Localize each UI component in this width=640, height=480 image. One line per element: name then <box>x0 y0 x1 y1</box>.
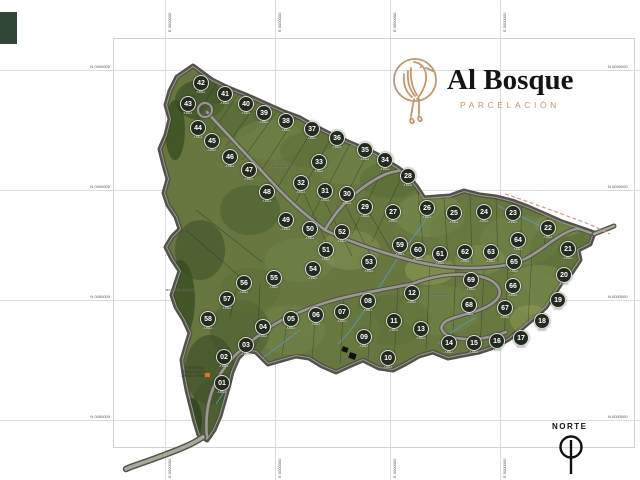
logo: Al Bosque PARCELACIÓN <box>390 52 600 132</box>
lot-area-label: AREA <box>450 221 459 224</box>
lot-marker-58: 58AREA <box>200 311 216 327</box>
lot-number: 41 <box>221 91 229 98</box>
lot-area-label: AREA <box>287 327 296 330</box>
lot-number: 44 <box>194 125 202 132</box>
lot-number: 21 <box>564 246 572 253</box>
lot-marker-45: 45AREA <box>204 133 220 149</box>
lot-number: 46 <box>226 154 234 161</box>
lot-marker-42: 42AREA <box>193 75 209 91</box>
lot-number: 59 <box>396 242 404 249</box>
lot-number: 28 <box>404 173 412 180</box>
lot-area-label: AREA <box>263 200 272 203</box>
lot-area-label: AREA <box>197 91 206 94</box>
lot-area-label: AREA <box>364 309 373 312</box>
lot-number: 54 <box>309 266 317 273</box>
lot-number: 52 <box>338 229 346 236</box>
bird-icon <box>390 54 444 132</box>
lot-marker-18: 18AREA <box>534 313 550 329</box>
lot-area-label: AREA <box>564 257 573 260</box>
lot-number: 23 <box>509 210 517 217</box>
lot-number: 36 <box>333 135 341 142</box>
lot-number: 32 <box>297 180 305 187</box>
lot-marker-59: 59AREA <box>392 237 408 253</box>
lot-number: 22 <box>544 225 552 232</box>
lot-number: 31 <box>321 188 329 195</box>
lot-marker-15: 15AREA <box>466 335 482 351</box>
lot-area-label: AREA <box>390 329 399 332</box>
lot-number: 19 <box>554 297 562 304</box>
lot-area-label: AREA <box>487 260 496 263</box>
lot-number: 43 <box>184 101 192 108</box>
lot-number: 63 <box>487 249 495 256</box>
site-plan-sheet: E 0000000E 0000000E 0000000E 0000000E 00… <box>0 0 640 480</box>
lot-area-label: AREA <box>465 313 474 316</box>
lot-marker-55: 55AREA <box>266 270 282 286</box>
lot-marker-53: 53AREA <box>361 254 377 270</box>
lot-marker-33: 33AREA <box>311 154 327 170</box>
lot-number: 65 <box>510 259 518 266</box>
lot-marker-65: 65AREA <box>506 254 522 270</box>
lot-area-label: AREA <box>308 137 317 140</box>
lot-number: 07 <box>338 309 346 316</box>
lot-marker-52: 52AREA <box>334 224 350 240</box>
lot-marker-17: 17AREA <box>513 330 529 346</box>
lot-area-label: AREA <box>384 366 393 369</box>
lot-marker-22: 22AREA <box>540 220 556 236</box>
lot-number: 37 <box>308 126 316 133</box>
lot-marker-38: 38AREA <box>278 113 294 129</box>
lot-number: 30 <box>343 191 351 198</box>
lot-area-label: AREA <box>501 316 510 319</box>
lot-number: 50 <box>306 226 314 233</box>
lot-number: 40 <box>242 101 250 108</box>
lot-marker-44: 44AREA <box>190 120 206 136</box>
lot-area-label: AREA <box>315 170 324 173</box>
lot-number: 49 <box>282 217 290 224</box>
lot-marker-05: 05AREA <box>283 311 299 327</box>
lot-number: 26 <box>423 205 431 212</box>
lot-area-label: AREA <box>436 262 445 265</box>
lot-marker-12: 12AREA <box>404 285 420 301</box>
lot-marker-48: 48AREA <box>259 184 275 200</box>
lot-area-label: AREA <box>480 220 489 223</box>
lot-area-label: AREA <box>321 199 330 202</box>
lot-number: 12 <box>408 290 416 297</box>
lot-marker-16: 16AREA <box>489 333 505 349</box>
lot-marker-07: 07AREA <box>334 304 350 320</box>
lot-area-label: AREA <box>259 335 268 338</box>
lot-area-label: AREA <box>223 307 232 310</box>
lot-number: 39 <box>260 110 268 117</box>
lot-number: 56 <box>240 280 248 287</box>
lot-area-label: AREA <box>282 129 291 132</box>
lot-area-label: AREA <box>343 202 352 205</box>
lot-marker-61: 61AREA <box>432 246 448 262</box>
lot-area-label: AREA <box>333 146 342 149</box>
lot-number: 69 <box>467 277 475 284</box>
lot-marker-25: 25AREA <box>446 205 462 221</box>
lot-marker-64: 64AREA <box>510 232 526 248</box>
lot-marker-14: 14AREA <box>441 335 457 351</box>
lot-number: 64 <box>514 237 522 244</box>
lot-number: 33 <box>315 159 323 166</box>
lot-number: 16 <box>493 338 501 345</box>
lot-area-label: AREA <box>270 286 279 289</box>
lot-area-label: AREA <box>297 191 306 194</box>
lot-area-label: AREA <box>467 288 476 291</box>
lot-area-label: AREA <box>365 270 374 273</box>
lot-number: 17 <box>517 335 525 342</box>
lot-number: 47 <box>245 167 253 174</box>
lot-marker-13: 13AREA <box>413 321 429 337</box>
corner-accent-bar <box>0 12 17 44</box>
lot-area-label: AREA <box>544 236 553 239</box>
lot-number: 68 <box>465 302 473 309</box>
lot-number: 51 <box>322 247 330 254</box>
lot-number: 04 <box>259 324 267 331</box>
lot-area-label: AREA <box>194 136 203 139</box>
lot-area-label: AREA <box>282 228 291 231</box>
lot-area-label: AREA <box>493 349 502 352</box>
lot-number: 15 <box>470 340 478 347</box>
lot-area-label: AREA <box>322 258 331 261</box>
lot-marker-08: 08AREA <box>360 293 376 309</box>
lot-marker-37: 37AREA <box>304 121 320 137</box>
lot-marker-21: 21AREA <box>560 241 576 257</box>
lot-marker-20: 20AREA <box>556 267 572 283</box>
lot-number: 45 <box>208 138 216 145</box>
lot-marker-31: 31AREA <box>317 183 333 199</box>
lot-area-label: AREA <box>554 308 563 311</box>
lot-area-label: AREA <box>361 158 370 161</box>
lot-area-label: AREA <box>517 346 526 349</box>
lot-marker-68: 68AREA <box>461 297 477 313</box>
lot-marker-28: 28AREA <box>400 168 416 184</box>
lot-number: 57 <box>223 296 231 303</box>
lot-area-label: AREA <box>208 149 217 152</box>
lot-number: 03 <box>242 342 250 349</box>
lot-marker-51: 51AREA <box>318 242 334 258</box>
lot-area-label: AREA <box>260 121 269 124</box>
lot-marker-04: 04AREA <box>255 319 271 335</box>
lot-number: 27 <box>389 209 397 216</box>
lot-area-label: AREA <box>461 260 470 263</box>
lot-area-label: AREA <box>538 329 547 332</box>
lot-area-label: AREA <box>389 220 398 223</box>
lot-area-label: AREA <box>417 337 426 340</box>
lot-number: 29 <box>361 204 369 211</box>
lot-area-label: AREA <box>306 237 315 240</box>
lot-area-label: AREA <box>381 168 390 171</box>
lot-area-label: AREA <box>423 216 432 219</box>
lot-marker-30: 30AREA <box>339 186 355 202</box>
lot-area-label: AREA <box>514 248 523 251</box>
lot-marker-09: 09AREA <box>356 329 372 345</box>
lot-number: 06 <box>312 312 320 319</box>
lot-number: 38 <box>282 118 290 125</box>
lot-area-label: AREA <box>242 112 251 115</box>
lot-number: 08 <box>364 298 372 305</box>
lot-number: 53 <box>365 259 373 266</box>
lot-area-label: AREA <box>184 112 193 115</box>
lot-marker-43: 43AREA <box>180 96 196 112</box>
lot-number: 61 <box>436 251 444 258</box>
lot-area-label: AREA <box>242 353 251 356</box>
lot-marker-23: 23AREA <box>505 205 521 221</box>
lot-area-label: AREA <box>404 184 413 187</box>
lot-area-label: AREA <box>245 178 254 181</box>
lot-area-label: AREA <box>204 327 213 330</box>
lot-marker-46: 46AREA <box>222 149 238 165</box>
lot-number: 48 <box>263 189 271 196</box>
lot-marker-01: 01AREA <box>214 375 230 391</box>
lot-number: 09 <box>360 334 368 341</box>
north-arrow-icon <box>548 432 598 476</box>
lot-number: 25 <box>450 210 458 217</box>
lot-marker-29: 29AREA <box>357 199 373 215</box>
logo-title: Al Bosque <box>447 64 574 97</box>
lot-number: 10 <box>384 355 392 362</box>
lot-number: 42 <box>197 80 205 87</box>
lot-number: 67 <box>501 305 509 312</box>
lot-area-label: AREA <box>218 391 227 394</box>
lot-area-label: AREA <box>338 320 347 323</box>
lot-marker-47: 47AREA <box>241 162 257 178</box>
lot-marker-56: 56AREA <box>236 275 252 291</box>
lot-marker-06: 06AREA <box>308 307 324 323</box>
lot-area-label: AREA <box>396 253 405 256</box>
lot-number: 05 <box>287 316 295 323</box>
lot-number: 34 <box>381 157 389 164</box>
lot-area-label: AREA <box>509 294 518 297</box>
lot-marker-60: 60AREA <box>410 242 426 258</box>
lot-marker-57: 57AREA <box>219 291 235 307</box>
lot-area-label: AREA <box>445 351 454 354</box>
lot-area-label: AREA <box>360 345 369 348</box>
north-arrow: NORTE <box>548 422 598 474</box>
lot-marker-02: 02AREA <box>216 349 232 365</box>
lot-area-label: AREA <box>470 351 479 354</box>
lot-area-label: AREA <box>312 323 321 326</box>
lot-area-label: AREA <box>510 270 519 273</box>
lot-marker-32: 32AREA <box>293 175 309 191</box>
lot-number: 02 <box>220 354 228 361</box>
lot-marker-10: 10AREA <box>380 350 396 366</box>
lot-number: 35 <box>361 147 369 154</box>
lot-marker-11: 11AREA <box>386 313 402 329</box>
lot-marker-67: 67AREA <box>497 300 513 316</box>
lot-marker-34: 34AREA <box>377 152 393 168</box>
lot-number: 13 <box>417 326 425 333</box>
lot-area-label: AREA <box>408 301 417 304</box>
lot-marker-63: 63AREA <box>483 244 499 260</box>
lot-marker-35: 35AREA <box>357 142 373 158</box>
lot-number: 66 <box>509 283 517 290</box>
lot-area-label: AREA <box>560 283 569 286</box>
lot-area-label: AREA <box>509 221 518 224</box>
lot-marker-40: 40AREA <box>238 96 254 112</box>
lot-marker-27: 27AREA <box>385 204 401 220</box>
lot-number: 62 <box>461 249 469 256</box>
lot-number: 20 <box>560 272 568 279</box>
logo-subtitle: PARCELACIÓN <box>460 100 560 110</box>
lot-number: 58 <box>204 316 212 323</box>
lot-number: 14 <box>445 340 453 347</box>
lot-marker-50: 50AREA <box>302 221 318 237</box>
lot-marker-19: 19AREA <box>550 292 566 308</box>
lot-number: 60 <box>414 247 422 254</box>
lot-area-label: AREA <box>226 165 235 168</box>
lot-marker-54: 54AREA <box>305 261 321 277</box>
lot-number: 18 <box>538 318 546 325</box>
lot-number: 24 <box>480 209 488 216</box>
lot-marker-69: 69AREA <box>463 272 479 288</box>
lot-area-label: AREA <box>240 291 249 294</box>
lot-marker-41: 41AREA <box>217 86 233 102</box>
lot-marker-03: 03AREA <box>238 337 254 353</box>
lot-marker-39: 39AREA <box>256 105 272 121</box>
lot-marker-36: 36AREA <box>329 130 345 146</box>
lot-marker-66: 66AREA <box>505 278 521 294</box>
lot-area-label: AREA <box>220 365 229 368</box>
lot-area-label: AREA <box>414 258 423 261</box>
lot-marker-49: 49AREA <box>278 212 294 228</box>
lot-number: 01 <box>218 380 226 387</box>
lot-area-label: AREA <box>309 277 318 280</box>
lot-number: 11 <box>390 318 397 325</box>
north-arrow-label: NORTE <box>552 422 588 431</box>
lot-marker-62: 62AREA <box>457 244 473 260</box>
lot-area-label: AREA <box>221 102 230 105</box>
lot-area-label: AREA <box>338 240 347 243</box>
lot-marker-24: 24AREA <box>476 204 492 220</box>
lot-number: 55 <box>270 275 278 282</box>
lot-area-label: AREA <box>361 215 370 218</box>
lot-marker-26: 26AREA <box>419 200 435 216</box>
